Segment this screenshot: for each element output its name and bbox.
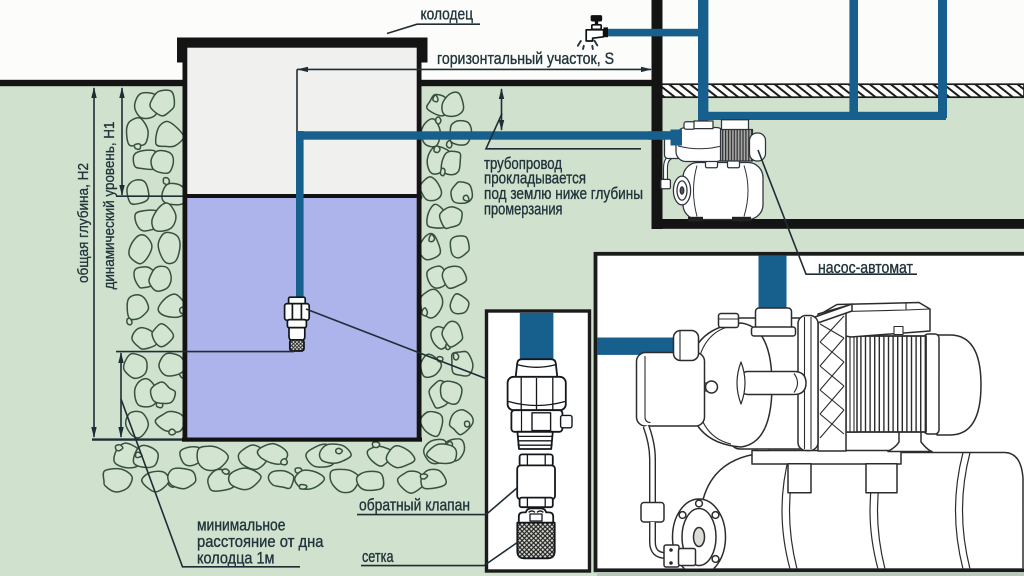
- svg-text:минимальное: минимальное: [197, 517, 286, 535]
- svg-text:насос-автомат: насос-автомат: [818, 259, 913, 277]
- svg-text:горизонтальный участок, S: горизонтальный участок, S: [437, 50, 614, 68]
- svg-text:колодец: колодец: [421, 5, 474, 23]
- svg-text:динамический уровень, Н1: динамический уровень, Н1: [101, 122, 118, 290]
- svg-text:обратный клапан: обратный клапан: [359, 496, 470, 514]
- svg-text:расстояние от дна: расстояние от дна: [197, 533, 324, 551]
- svg-text:общая глубина, Н2: общая глубина, Н2: [75, 163, 92, 283]
- svg-text:колодца 1м: колодца 1м: [197, 549, 275, 567]
- svg-text:промерзания: промерзания: [484, 201, 563, 219]
- svg-text:сетка: сетка: [362, 548, 394, 566]
